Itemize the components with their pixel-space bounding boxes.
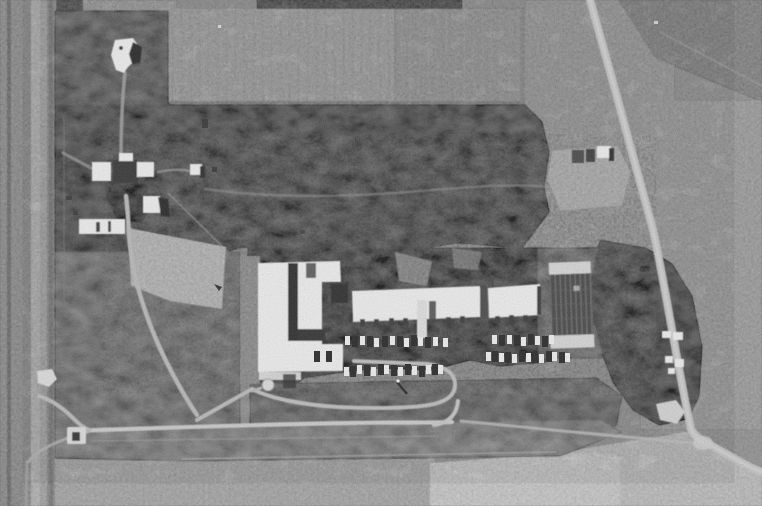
aerial-photo (0, 0, 762, 506)
film-grain (0, 0, 762, 506)
aerial-photo-canvas (0, 0, 762, 506)
